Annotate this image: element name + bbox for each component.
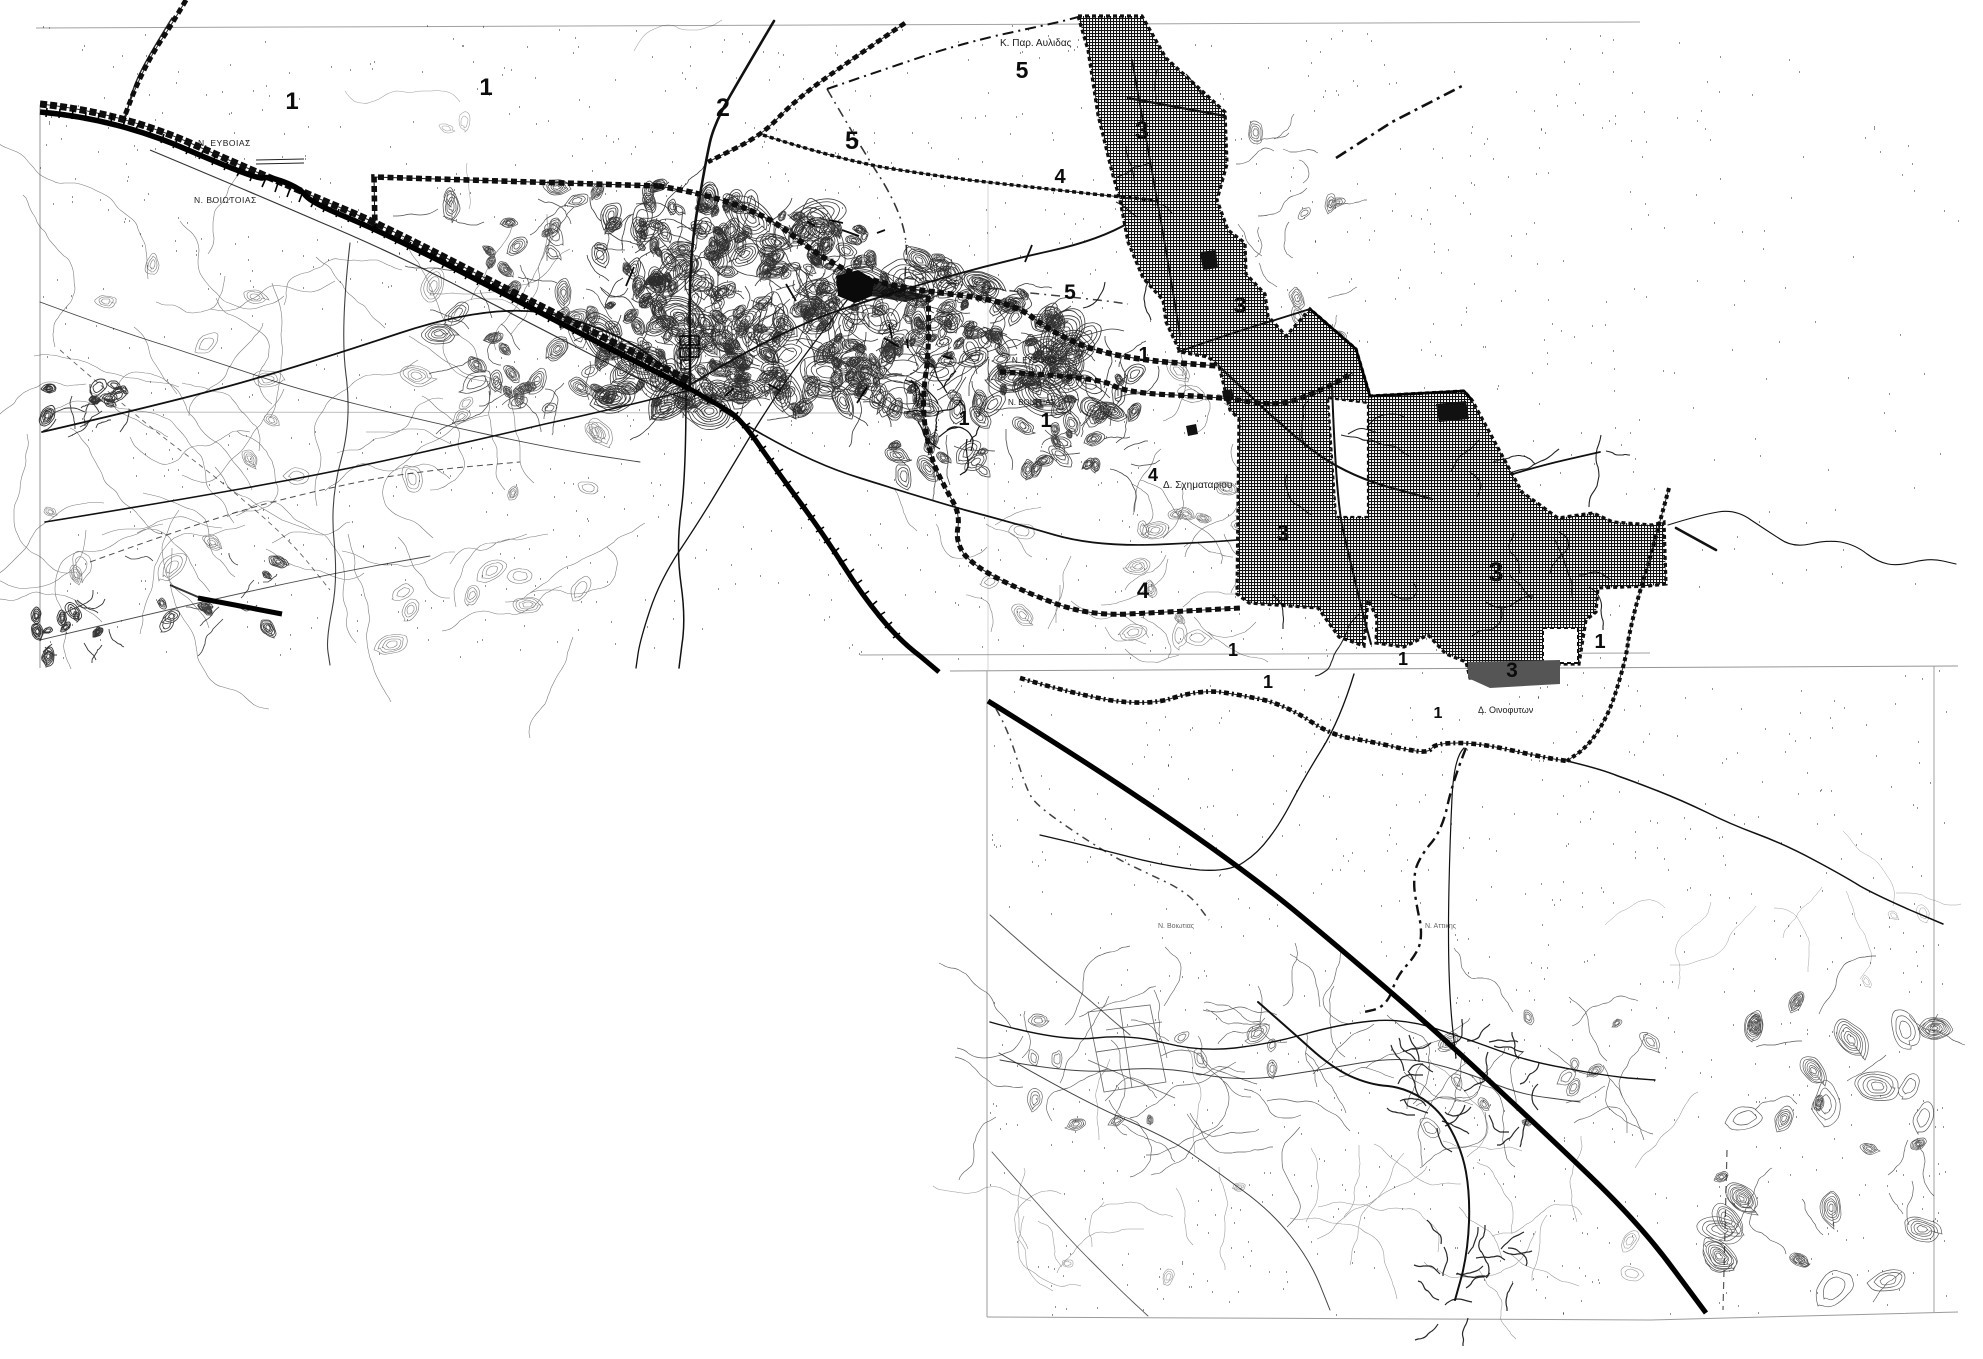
svg-text:1: 1: [479, 74, 492, 101]
svg-text:5: 5: [1064, 281, 1076, 304]
svg-text:1: 1: [1040, 410, 1051, 432]
svg-text:1: 1: [1138, 344, 1149, 366]
svg-text:1: 1: [285, 88, 298, 115]
svg-text:1: 1: [958, 408, 969, 430]
svg-text:5: 5: [1016, 57, 1029, 83]
svg-text:Κ. Παρ. Αυλιδας: Κ. Παρ. Αυλιδας: [1000, 38, 1072, 49]
svg-text:3: 3: [1277, 520, 1290, 546]
svg-text:5: 5: [845, 127, 859, 155]
svg-text:4: 4: [1148, 465, 1158, 485]
svg-text:Ν. ΕΥΒΟΙΑΣ: Ν. ΕΥΒΟΙΑΣ: [198, 138, 251, 148]
svg-text:1: 1: [1434, 705, 1443, 722]
svg-text:2: 2: [716, 94, 730, 122]
svg-text:Δ. Οινοφυτων: Δ. Οινοφυτων: [1478, 705, 1534, 715]
svg-text:Ν. ΒΟΙΩΤΙΑΣ: Ν. ΒΟΙΩΤΙΑΣ: [1008, 398, 1055, 407]
svg-text:3: 3: [1234, 292, 1247, 318]
svg-text:4: 4: [1137, 578, 1150, 603]
svg-text:Ν. Αττικης: Ν. Αττικης: [1425, 923, 1457, 930]
svg-text:Ν. ΕΥΒΟΙΑΣ: Ν. ΕΥΒΟΙΑΣ: [1012, 356, 1057, 365]
svg-text:Δ. Σχηματαριου: Δ. Σχηματαριου: [1163, 480, 1232, 491]
svg-text:3: 3: [1488, 557, 1503, 587]
svg-text:1: 1: [1398, 649, 1408, 669]
svg-text:1: 1: [1263, 672, 1273, 692]
svg-text:4: 4: [1054, 166, 1066, 188]
svg-text:1: 1: [1594, 631, 1605, 653]
svg-text:Ν. Βοιωτιας: Ν. Βοιωτιας: [1158, 923, 1195, 930]
svg-text:3: 3: [1506, 659, 1518, 682]
svg-text:Ν. ΒΟΙΩΤΟΙΑΣ: Ν. ΒΟΙΩΤΟΙΑΣ: [194, 195, 257, 205]
svg-text:3: 3: [1135, 117, 1149, 145]
svg-text:1: 1: [1228, 640, 1238, 660]
